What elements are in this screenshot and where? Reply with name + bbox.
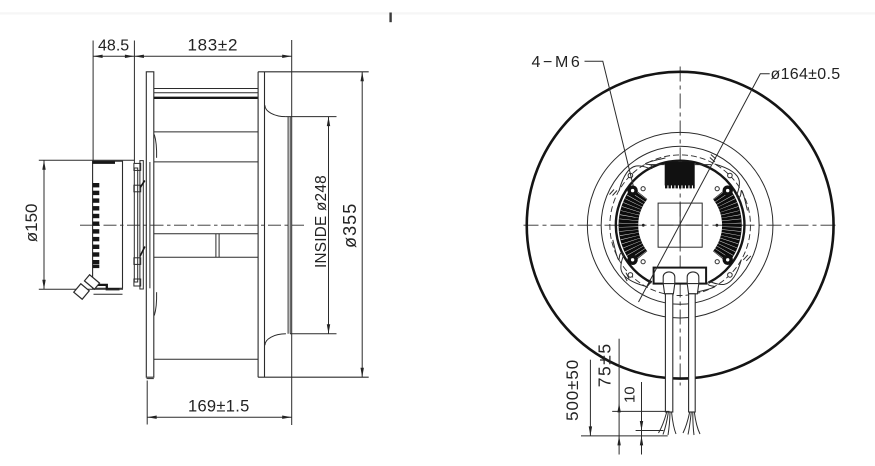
svg-text:ø355: ø355 [340,203,360,248]
svg-text:ø164±0.5: ø164±0.5 [771,66,841,83]
svg-text:4−M6: 4−M6 [532,54,583,71]
svg-text:169±1.5: 169±1.5 [188,398,250,416]
svg-text:48.5: 48.5 [98,38,129,55]
svg-text:10: 10 [622,386,639,403]
svg-text:ø150: ø150 [22,204,41,243]
svg-text:INSIDE ø248: INSIDE ø248 [313,175,330,268]
svg-text:75±5: 75±5 [595,342,615,387]
svg-text:500±50: 500±50 [563,359,582,421]
svg-text:183±2: 183±2 [187,36,238,55]
